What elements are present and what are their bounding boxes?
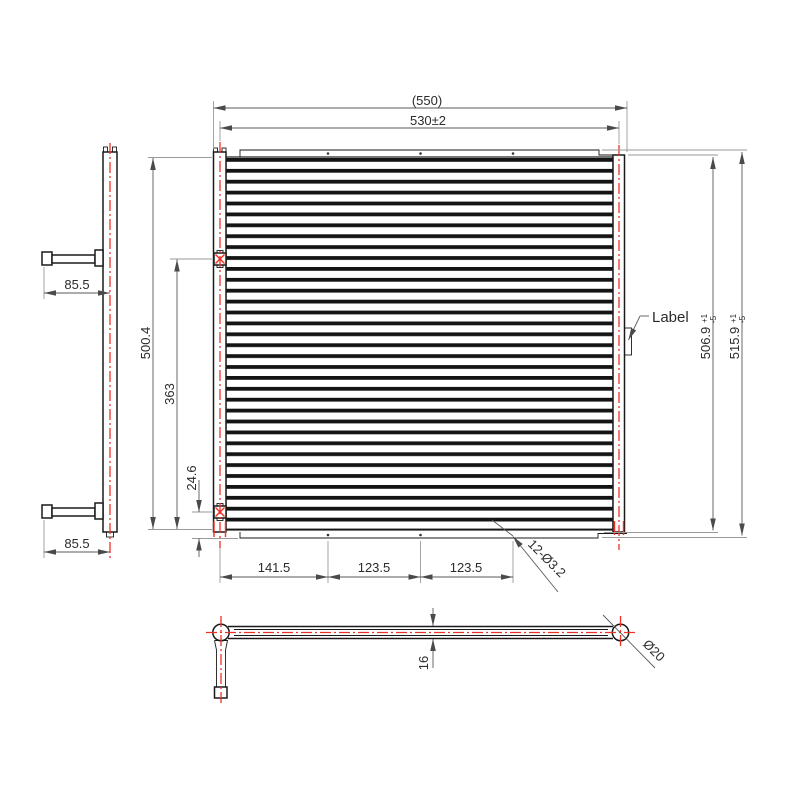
top-bracket-hole [512,152,515,155]
technical-drawing: (550) 530±2 500.4 363 24.6 85.5 [0,0,800,800]
dim-pipe-top: 85.5 [64,277,89,292]
dim-chain-2: 123.5 [358,560,391,575]
bottom-bracket [240,532,627,538]
label-callout: Label [652,309,689,326]
dim-slab-thickness: 16 [416,656,431,670]
dim-header-diameter: Ø20 [640,636,668,664]
drawing-canvas: (550) 530±2 500.4 363 24.6 85.5 [0,0,800,800]
dim-port-offset: 24.6 [184,465,199,490]
side-view-upper-pipe [42,250,103,266]
top-bracket-hole [419,152,422,155]
bottom-bracket-hole [419,534,422,537]
dim-core-width: 530±2 [410,113,446,128]
svg-text:+1: +1 [729,313,738,323]
dim-height-outer: 515.9 +1 -5 [727,313,747,359]
top-bracket [240,150,613,157]
dim-port-span: 363 [162,383,177,405]
tube-core [226,157,613,530]
dim-chain-3: 123.5 [450,560,483,575]
svg-text:-5: -5 [738,315,747,323]
dim-pipe-bottom: 85.5 [64,536,89,551]
side-view-lower-pipe [42,503,103,519]
svg-text:-5: -5 [709,315,718,323]
label-tag [625,328,632,355]
svg-text:515.9: 515.9 [727,327,742,360]
side-view [42,143,117,560]
dim-chain-1: 141.5 [258,560,291,575]
dim-height-inner: 506.9 +1 -5 [698,313,718,359]
dim-overall-height: 500.4 [138,327,153,360]
dim-overall-width: (550) [412,93,442,108]
dim-holes-note: 12-Ø3.2 [525,536,569,580]
svg-text:506.9: 506.9 [698,327,713,360]
svg-text:+1: +1 [700,313,709,323]
top-bracket-hole [327,152,330,155]
main-view [214,142,632,550]
bottom-bracket-hole [327,534,330,537]
